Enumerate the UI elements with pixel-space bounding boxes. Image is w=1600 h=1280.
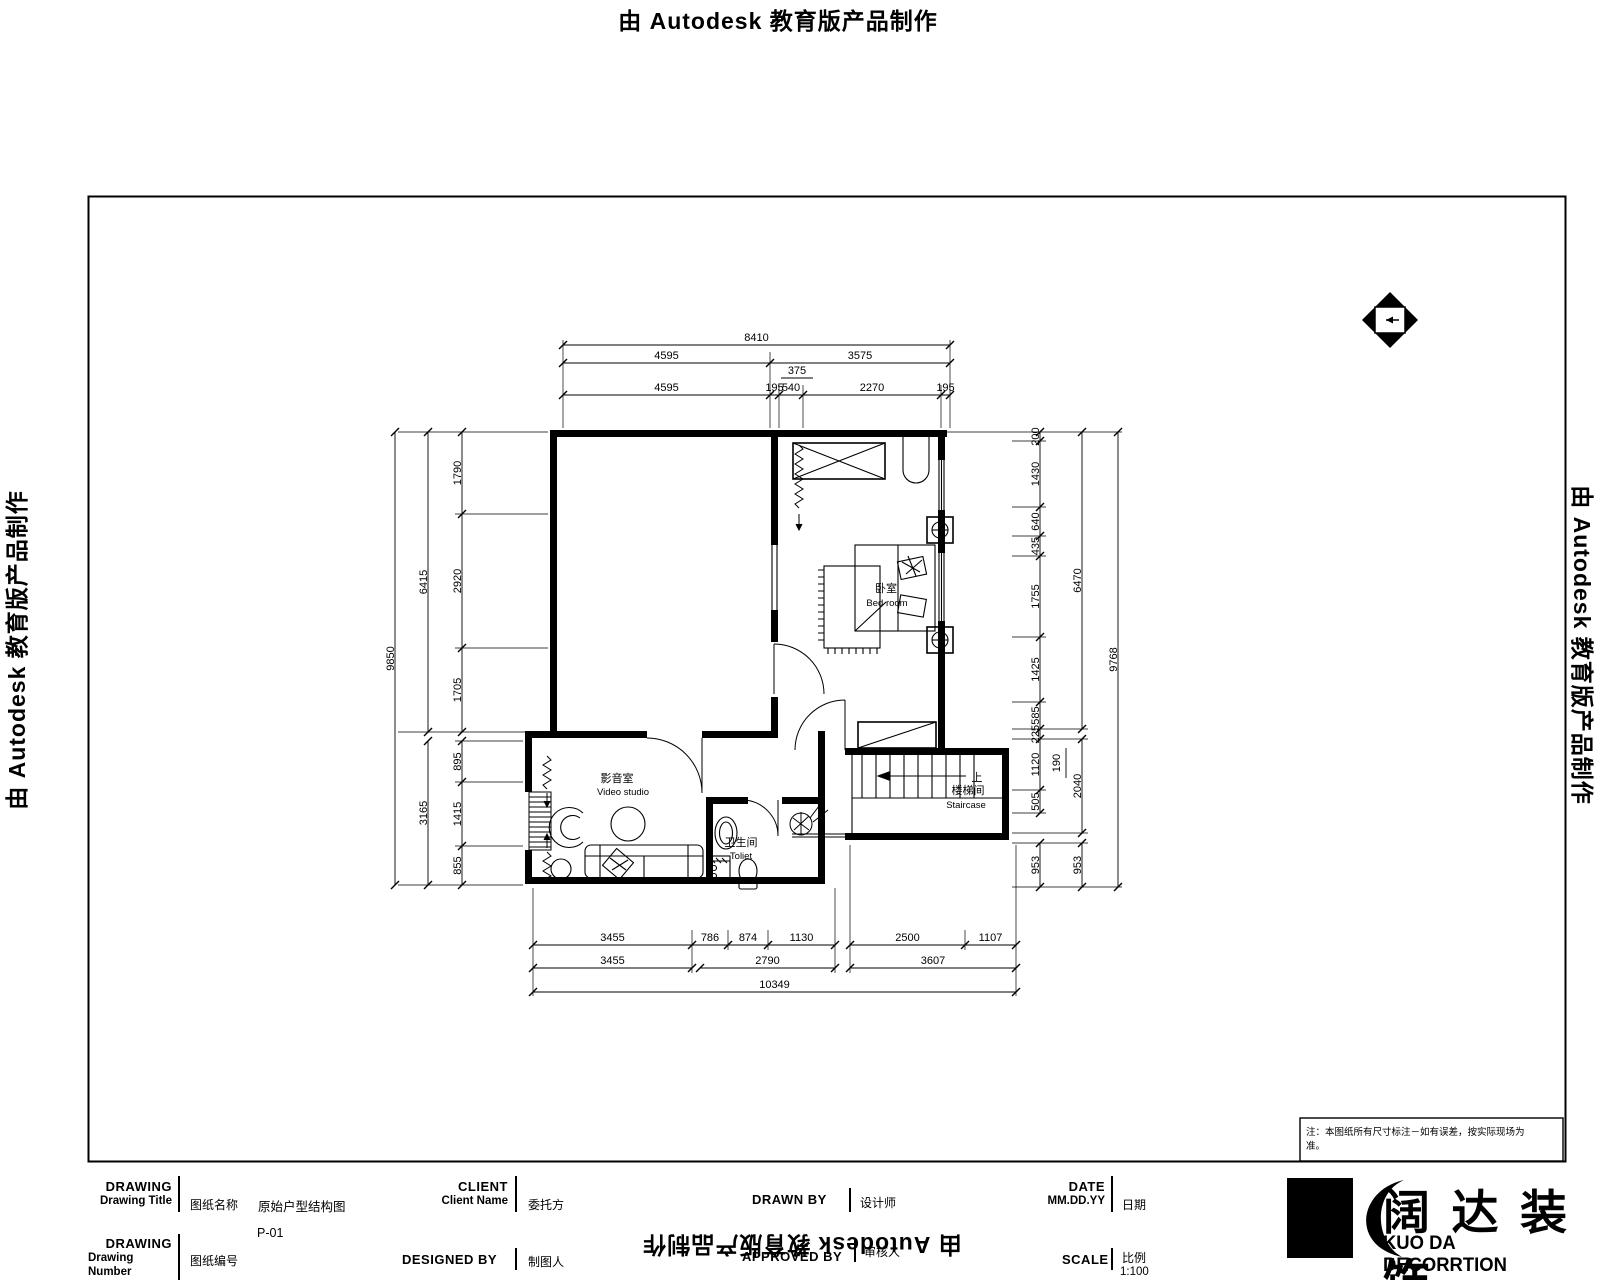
- autodesk-stamp-top: 由 Autodesk 教育版产品制作: [578, 2, 978, 36]
- date-label-en2: MM.DD.YY: [1035, 1195, 1105, 1207]
- drawing-title-label-en: DRAWING: [96, 1179, 172, 1194]
- toilet-label-en: Toliet: [730, 851, 753, 862]
- staircase-label-en: Staircase: [946, 800, 986, 811]
- dim-chain-left-mid-b: 3165: [418, 737, 432, 889]
- svg-text:190: 190: [1051, 754, 1063, 772]
- door-arcs: [647, 644, 845, 836]
- dim-chain-left-mid-a: 6415: [418, 428, 432, 736]
- svg-text:1130: 1130: [790, 932, 814, 944]
- svg-text:375: 375: [788, 365, 806, 377]
- svg-text:3575: 3575: [848, 350, 872, 362]
- svg-text:2270: 2270: [860, 382, 884, 394]
- svg-text:1107: 1107: [979, 932, 1003, 944]
- note-line2: 准。: [1306, 1140, 1558, 1154]
- svg-text:3165: 3165: [418, 801, 430, 825]
- svg-text:1790: 1790: [452, 461, 464, 485]
- svg-text:8410: 8410: [744, 332, 768, 344]
- beam-symbol: [858, 722, 936, 748]
- plant-symbol: [790, 802, 845, 837]
- floor-plan-canvas: 卧室 Bed room 影音室 Video studio 卫生间 Toliet …: [0, 0, 1600, 1280]
- drawing-number-label-en2: Drawing: [88, 1252, 133, 1264]
- dim-chain-right-mid-a: 6470: [1072, 428, 1086, 733]
- dim-chain-bottom-row2c: 3607: [846, 955, 1020, 972]
- svg-text:2500: 2500: [895, 932, 919, 944]
- scale-label-en: SCALE: [1062, 1252, 1109, 1267]
- svg-text:505: 505: [1030, 792, 1042, 810]
- svg-text:1705: 1705: [452, 678, 464, 702]
- scale-value: 1:100: [1120, 1266, 1149, 1278]
- video-room-label-zh: 影音室: [601, 771, 634, 785]
- autodesk-stamp-left: 由 Autodesk 教育版产品制作: [0, 450, 32, 850]
- svg-text:640: 640: [1030, 512, 1042, 530]
- approved-by-label-en: APPROVED BY: [742, 1249, 842, 1264]
- dim-chain-bottom-row2b: 2790: [696, 955, 839, 972]
- staircase-label-zh: 楼梯间: [952, 783, 985, 797]
- svg-text:3455: 3455: [600, 955, 624, 967]
- svg-text:10349: 10349: [759, 979, 790, 991]
- date-label-en: DATE: [1045, 1179, 1105, 1194]
- bedroom-furniture: [793, 437, 953, 654]
- designed-by-label-en: DESIGNED BY: [402, 1252, 497, 1267]
- revision-note: 注：本图纸所有尺寸标注－如有误差，按实际现场为 准。: [1306, 1126, 1558, 1154]
- svg-text:4595: 4595: [654, 350, 678, 362]
- drawing-title-value: 原始户型结构图: [258, 1196, 346, 1215]
- svg-text:3455: 3455: [600, 932, 624, 944]
- svg-text:1120: 1120: [1030, 753, 1042, 777]
- radiator-symbols: [543, 445, 803, 880]
- dim-chain-bottom-total: 10349: [529, 979, 1020, 996]
- dim-chain-right-total: 9768: [1108, 428, 1122, 891]
- dim-chain-right-inner-b: 953: [1030, 839, 1044, 891]
- svg-text:6470: 6470: [1072, 568, 1084, 592]
- note-line1: 注：本图纸所有尺寸标注－如有误差，按实际现场为: [1306, 1126, 1558, 1140]
- bedroom-label-zh: 卧室: [875, 581, 897, 595]
- svg-text:1415: 1415: [452, 802, 464, 826]
- drawn-by-label-zh: 设计师: [860, 1194, 896, 1211]
- dim-chain-left-inner-a: 179029201705: [452, 428, 466, 736]
- svg-text:2920: 2920: [452, 569, 464, 593]
- dim-chain-left-total: 9850: [385, 428, 399, 889]
- svg-text:585: 585: [1030, 706, 1042, 724]
- dim-chain-top-total: 8410: [559, 332, 954, 349]
- stair-up-label: 上: [972, 771, 983, 784]
- svg-text:874: 874: [739, 932, 757, 944]
- walls: [525, 430, 1009, 884]
- logo-company-name-en: KUO DA DECORRTION: [1383, 1233, 1563, 1277]
- toilet-label-zh: 卫生间: [725, 835, 758, 849]
- dim-chain-bottom-row2a: 3455: [529, 955, 696, 972]
- svg-text:1755: 1755: [1030, 584, 1042, 608]
- svg-text:786: 786: [701, 932, 719, 944]
- autodesk-stamp-right: 由 Autodesk 教育版产品制作: [1567, 445, 1600, 845]
- cad-drawing-page: 由 Autodesk 教育版产品制作 由 Autodesk 教育版产品制作 由 …: [0, 0, 1600, 1280]
- svg-text:9850: 9850: [385, 646, 397, 670]
- svg-text:855: 855: [452, 856, 464, 874]
- video-room-label-en: Video studio: [597, 787, 649, 798]
- video-room-furniture: [549, 807, 703, 879]
- svg-text:3607: 3607: [921, 955, 945, 967]
- svg-text:2790: 2790: [755, 955, 779, 967]
- bedroom-label-en: Bed room: [866, 598, 907, 609]
- svg-text:225: 225: [1030, 725, 1042, 743]
- drawing-number-label-en3: Number: [88, 1266, 131, 1278]
- svg-text:540: 540: [782, 382, 800, 394]
- designed-by-label-zh: 制图人: [528, 1253, 564, 1270]
- drawing-number-label-zh: 图纸编号: [190, 1252, 238, 1269]
- svg-text:2040: 2040: [1072, 774, 1084, 798]
- svg-text:1425: 1425: [1030, 657, 1042, 681]
- dim-chain-right-mid-c: 953: [1072, 839, 1086, 891]
- dim-chain-right-mid-b: 2040: [1072, 735, 1086, 837]
- svg-text:9768: 9768: [1108, 647, 1120, 671]
- dim-small-375: 375: [781, 365, 813, 378]
- svg-text:1430: 1430: [1030, 462, 1042, 486]
- dim-chain-bottom-row1a: 34557868741130: [529, 932, 839, 949]
- scale-label-zh: 比例: [1122, 1249, 1146, 1266]
- drawing-number-value: P-01: [257, 1226, 283, 1240]
- dim-chain-top-row3: 45951955402270195: [559, 382, 955, 399]
- client-label-zh: 委托方: [528, 1196, 564, 1213]
- date-label-zh: 日期: [1122, 1196, 1146, 1213]
- dim-chain-bottom-row1b: 25001107: [846, 932, 1020, 949]
- svg-text:435: 435: [1030, 537, 1042, 555]
- dim-chain-right-inner-a: 2001430640435175514255852251120505: [1030, 427, 1044, 817]
- client-label-en2: Client Name: [420, 1195, 508, 1207]
- client-label-en: CLIENT: [430, 1179, 508, 1194]
- dim-small-190: 190: [1051, 748, 1066, 778]
- window-hatch: [529, 792, 551, 850]
- svg-text:6415: 6415: [418, 570, 430, 594]
- svg-text:195: 195: [936, 382, 954, 394]
- dim-chain-top-row2: 45953575: [559, 350, 954, 367]
- drawn-by-label-en: DRAWN BY: [752, 1192, 827, 1207]
- svg-text:895: 895: [452, 752, 464, 770]
- svg-text:953: 953: [1030, 856, 1042, 874]
- svg-text:200: 200: [1030, 427, 1042, 445]
- drawing-number-label-en: DRAWING: [96, 1236, 172, 1251]
- window-symbols: [529, 460, 945, 850]
- svg-text:4595: 4595: [654, 382, 678, 394]
- sheet-border: [89, 197, 1566, 1162]
- north-arrow-icon: [1362, 292, 1418, 348]
- drawing-title-label-en2: Drawing Title: [86, 1195, 172, 1207]
- dim-chain-left-inner-b: 8951415855: [452, 737, 466, 889]
- approved-by-label-zh: 审核人: [864, 1243, 900, 1260]
- drawing-title-label-zh: 图纸名称: [190, 1196, 238, 1213]
- extension-lines: [398, 340, 1122, 996]
- svg-text:953: 953: [1072, 856, 1084, 874]
